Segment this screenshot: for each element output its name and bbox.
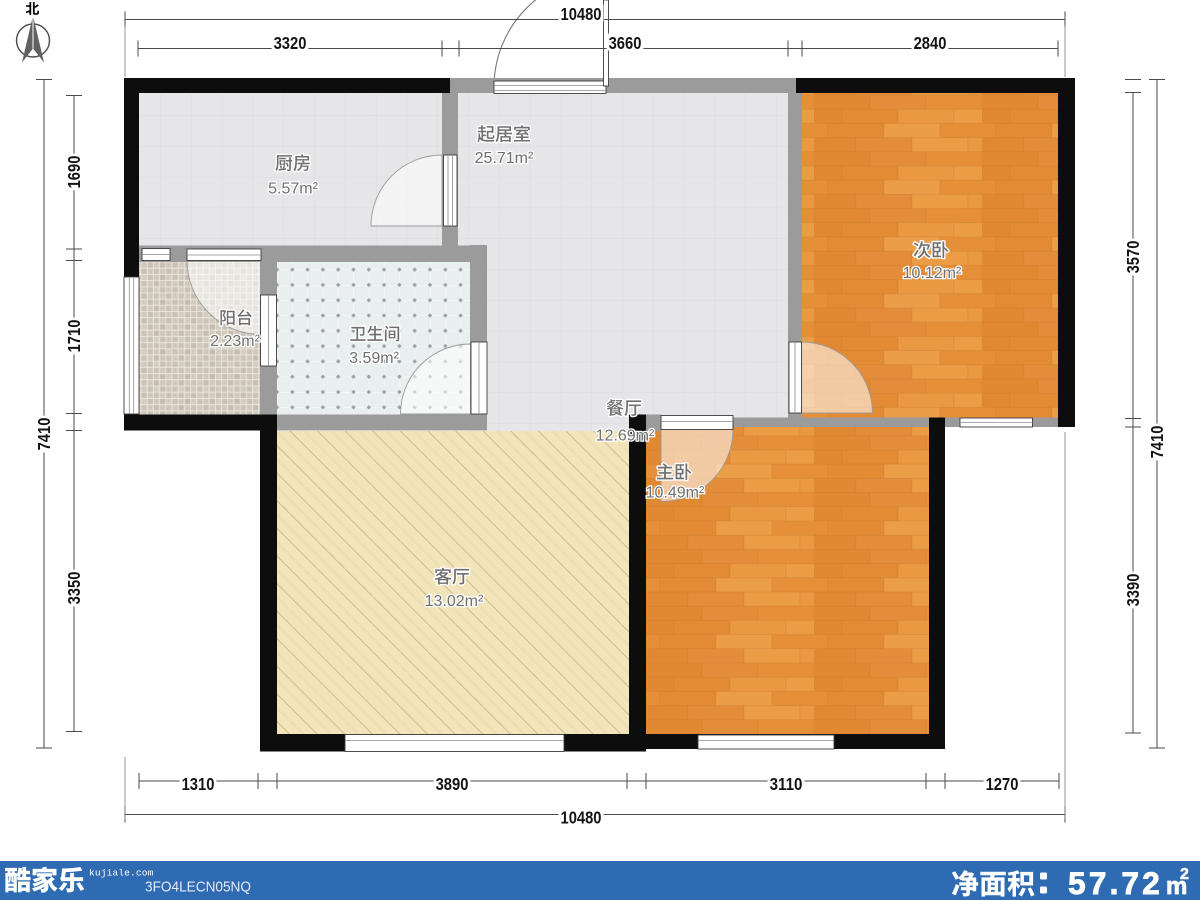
svg-text:2840: 2840 [914,33,947,53]
svg-text:3390: 3390 [1123,573,1143,606]
svg-text:25.71m²: 25.71m² [475,150,534,167]
svg-text:3890: 3890 [436,774,469,794]
svg-text:13.02m²: 13.02m² [425,593,484,610]
svg-text:1710: 1710 [64,319,84,352]
svg-text:3570: 3570 [1123,240,1143,273]
svg-text:1310: 1310 [182,774,215,794]
svg-text:10480: 10480 [561,4,602,24]
svg-text:10480: 10480 [561,808,602,828]
svg-text:1270: 1270 [986,774,1019,794]
svg-text:3FO4LECN05NQ: 3FO4LECN05NQ [145,879,251,896]
svg-text:3110: 3110 [770,774,803,794]
svg-text:2: 2 [1180,866,1189,883]
svg-text:3350: 3350 [64,571,84,604]
svg-text:57.72: 57.72 [1068,865,1163,900]
svg-text:7410: 7410 [34,417,54,450]
svg-text:10.49m²: 10.49m² [646,485,705,502]
svg-text:3660: 3660 [609,33,642,53]
svg-text:10.12m²: 10.12m² [903,265,962,282]
svg-text:12.69m²: 12.69m² [596,428,655,445]
svg-text:kujiale.com: kujiale.com [89,868,154,879]
svg-text:5.57m²: 5.57m² [268,181,318,198]
svg-text:3.59m²: 3.59m² [349,350,399,367]
svg-text:3320: 3320 [274,33,307,53]
svg-text:2.23m²: 2.23m² [210,333,260,350]
svg-text:1690: 1690 [64,155,84,188]
svg-text:7410: 7410 [1147,425,1167,458]
